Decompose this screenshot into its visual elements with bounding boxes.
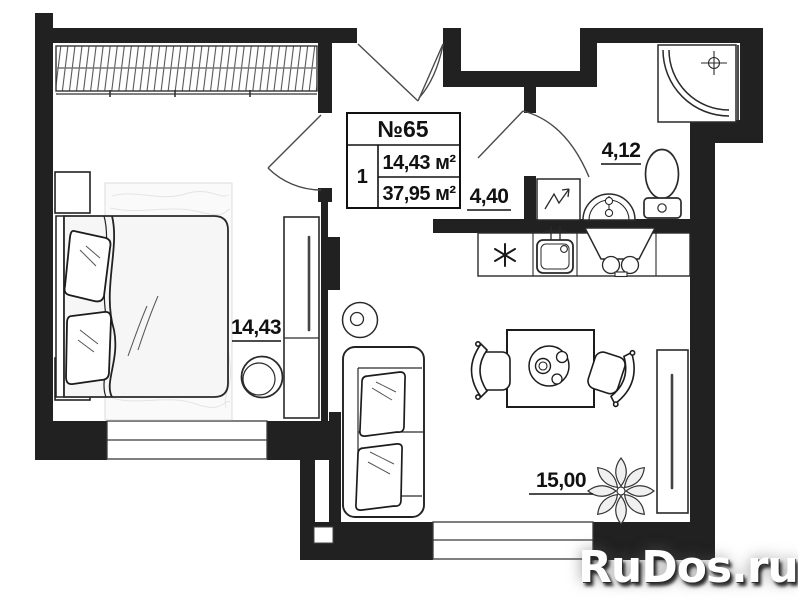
bedroom-door-arc	[268, 168, 321, 190]
burner-1	[603, 257, 620, 274]
kitchen-counter	[478, 233, 690, 276]
bed-headboard	[56, 216, 64, 397]
wall-bathdoor-pier-top	[524, 87, 536, 113]
bathroom-door	[478, 111, 589, 177]
wall-left	[35, 13, 53, 460]
wall-shaft	[580, 28, 597, 72]
wall-entry-niche	[461, 71, 597, 87]
wardrobe-top	[56, 46, 317, 97]
dining-table	[507, 330, 594, 407]
entry-door	[358, 44, 443, 101]
hallway-area-label: 4,40	[470, 185, 509, 208]
bedroom-door	[268, 115, 321, 190]
sofa-pillow-2	[356, 444, 402, 510]
apartment-number: №65	[377, 116, 428, 142]
living-room: 15,00	[343, 303, 689, 525]
wall-entry-pier	[443, 28, 461, 87]
living-window	[433, 522, 593, 559]
wall-kitchen-top	[433, 219, 715, 233]
living-area-value: 14,43 м²	[382, 152, 456, 174]
bedroom: 14,43	[55, 46, 319, 420]
toilet	[644, 150, 681, 219]
bathroom-door-arc	[523, 111, 589, 177]
wall-right-upper	[740, 43, 763, 123]
bathroom-sink	[583, 194, 635, 220]
watermark: RuDos.ru	[578, 542, 798, 593]
burner-2	[622, 257, 639, 274]
wall-living-bottom-left	[318, 522, 433, 560]
info-box: №65 1 14,43 м² 37,95 м²	[347, 113, 460, 208]
wardrobe-living	[657, 350, 688, 513]
bathroom-door-leaf	[478, 111, 523, 158]
wall-right-step	[690, 120, 763, 143]
wall-partition-pier-top	[318, 43, 332, 113]
wardrobe-bedroom	[284, 217, 319, 418]
wall-notch	[314, 527, 333, 543]
wall-bedroom-bottom-right	[267, 421, 329, 460]
sofa-pillow-1	[360, 372, 405, 436]
entry-door-leaf-left	[358, 44, 418, 101]
plant	[588, 458, 654, 524]
bedroom-window	[107, 421, 267, 459]
bedroom-door-leaf	[268, 115, 321, 168]
floor-plan: 14,43 №65 1 14,43 м² 37,95 м² 4,40	[0, 0, 798, 600]
bed	[56, 216, 228, 397]
entry-door-leaf-right	[418, 44, 443, 101]
wall-top-bedroom	[53, 28, 357, 43]
stool	[242, 357, 283, 398]
side-table	[343, 303, 378, 338]
floor-plan-drawing: 14,43 №65 1 14,43 м² 37,95 м² 4,40	[0, 0, 798, 600]
sofa	[343, 347, 424, 517]
wall-partition-low	[329, 412, 341, 524]
nightstand-top	[55, 172, 90, 213]
hallway: 4,40	[467, 185, 511, 210]
wall-bedroom-bottom-left	[35, 421, 107, 460]
bathroom-area-label: 4,12	[602, 139, 641, 162]
total-area-value: 37,95 м²	[382, 183, 456, 205]
chair-left	[472, 342, 511, 399]
living-area-label: 15,00	[536, 469, 586, 492]
wall-right-lower	[690, 143, 715, 560]
wall-bathdoor-pier-bottom	[524, 176, 536, 219]
wall-corridor-pier	[321, 237, 340, 290]
kitchen	[478, 226, 690, 277]
pillow-1	[65, 231, 111, 302]
washing-machine	[537, 179, 580, 220]
bedroom-area-label: 14,43	[231, 316, 281, 339]
rooms-count: 1	[357, 166, 368, 188]
wall-top-bathroom	[597, 28, 763, 43]
wall-partition-thin	[321, 200, 328, 430]
shower	[658, 45, 742, 122]
